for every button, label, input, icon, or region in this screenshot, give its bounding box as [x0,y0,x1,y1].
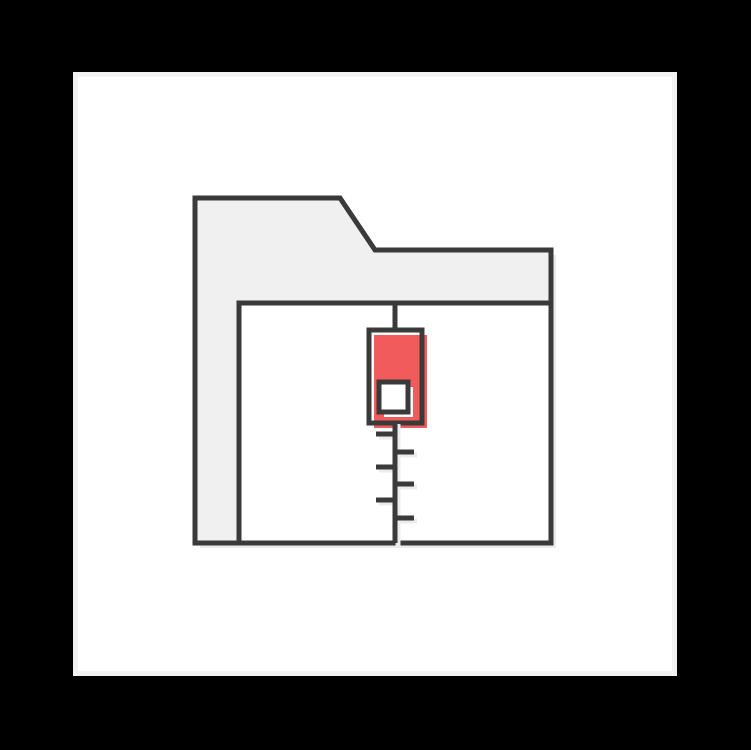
zipped-folder-icon [73,72,677,676]
black-canvas [0,0,751,750]
icon-card [73,72,677,676]
slider-window [379,382,408,412]
